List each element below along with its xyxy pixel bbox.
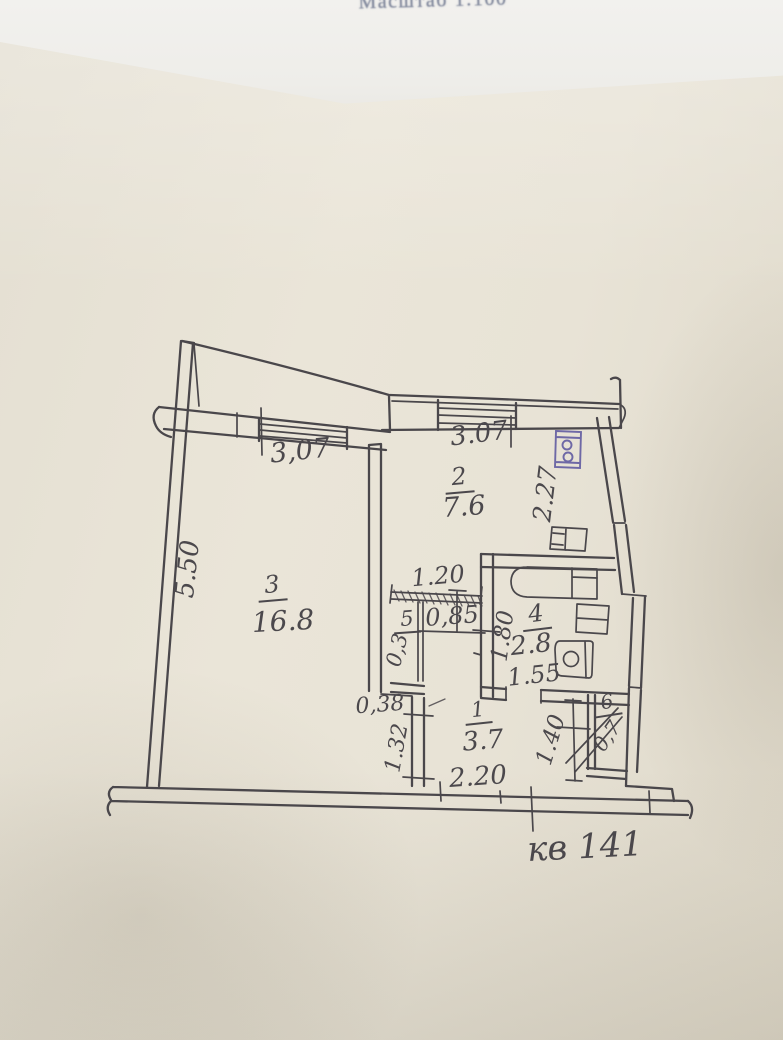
room1-area: 3.7 [461,724,505,757]
dim-left-wall: 5.50 [170,539,206,600]
room3-number: 3 [256,569,288,602]
room2-area: 7.6 [441,490,486,524]
room6-number: 6 [592,688,623,719]
room5-number: 5 [392,606,421,635]
dim-room3-window: 3,07 [268,432,331,469]
dim-passage-width: 0,85 [424,600,479,632]
room4-number: 4 [520,598,553,632]
room1-number: 1 [463,696,493,726]
apartment-number: кв 141 [526,824,644,870]
kitchen-sink-drawing [550,527,587,551]
bottom-wall-band [108,782,692,831]
balcony-wedge [182,341,390,430]
stove-drawing [555,431,581,468]
floor-plan-photo: { "document": { "scale_note": "Масштаб 1… [0,0,783,1040]
room2-number: 2 [443,461,475,494]
dim-wall-offset: 0,38 [355,691,406,719]
dim-passage-total: 1.20 [410,560,466,593]
hallway-door-stroke [429,699,445,706]
dim-hallway-width: 2.20 [448,760,508,794]
dim-bathroom-width: 1.55 [506,658,562,691]
bathtub-drawing [511,567,597,599]
floor-plan-drawing [0,0,783,1040]
wash-basin-drawing [576,604,609,634]
room3-area: 16.8 [251,603,315,639]
